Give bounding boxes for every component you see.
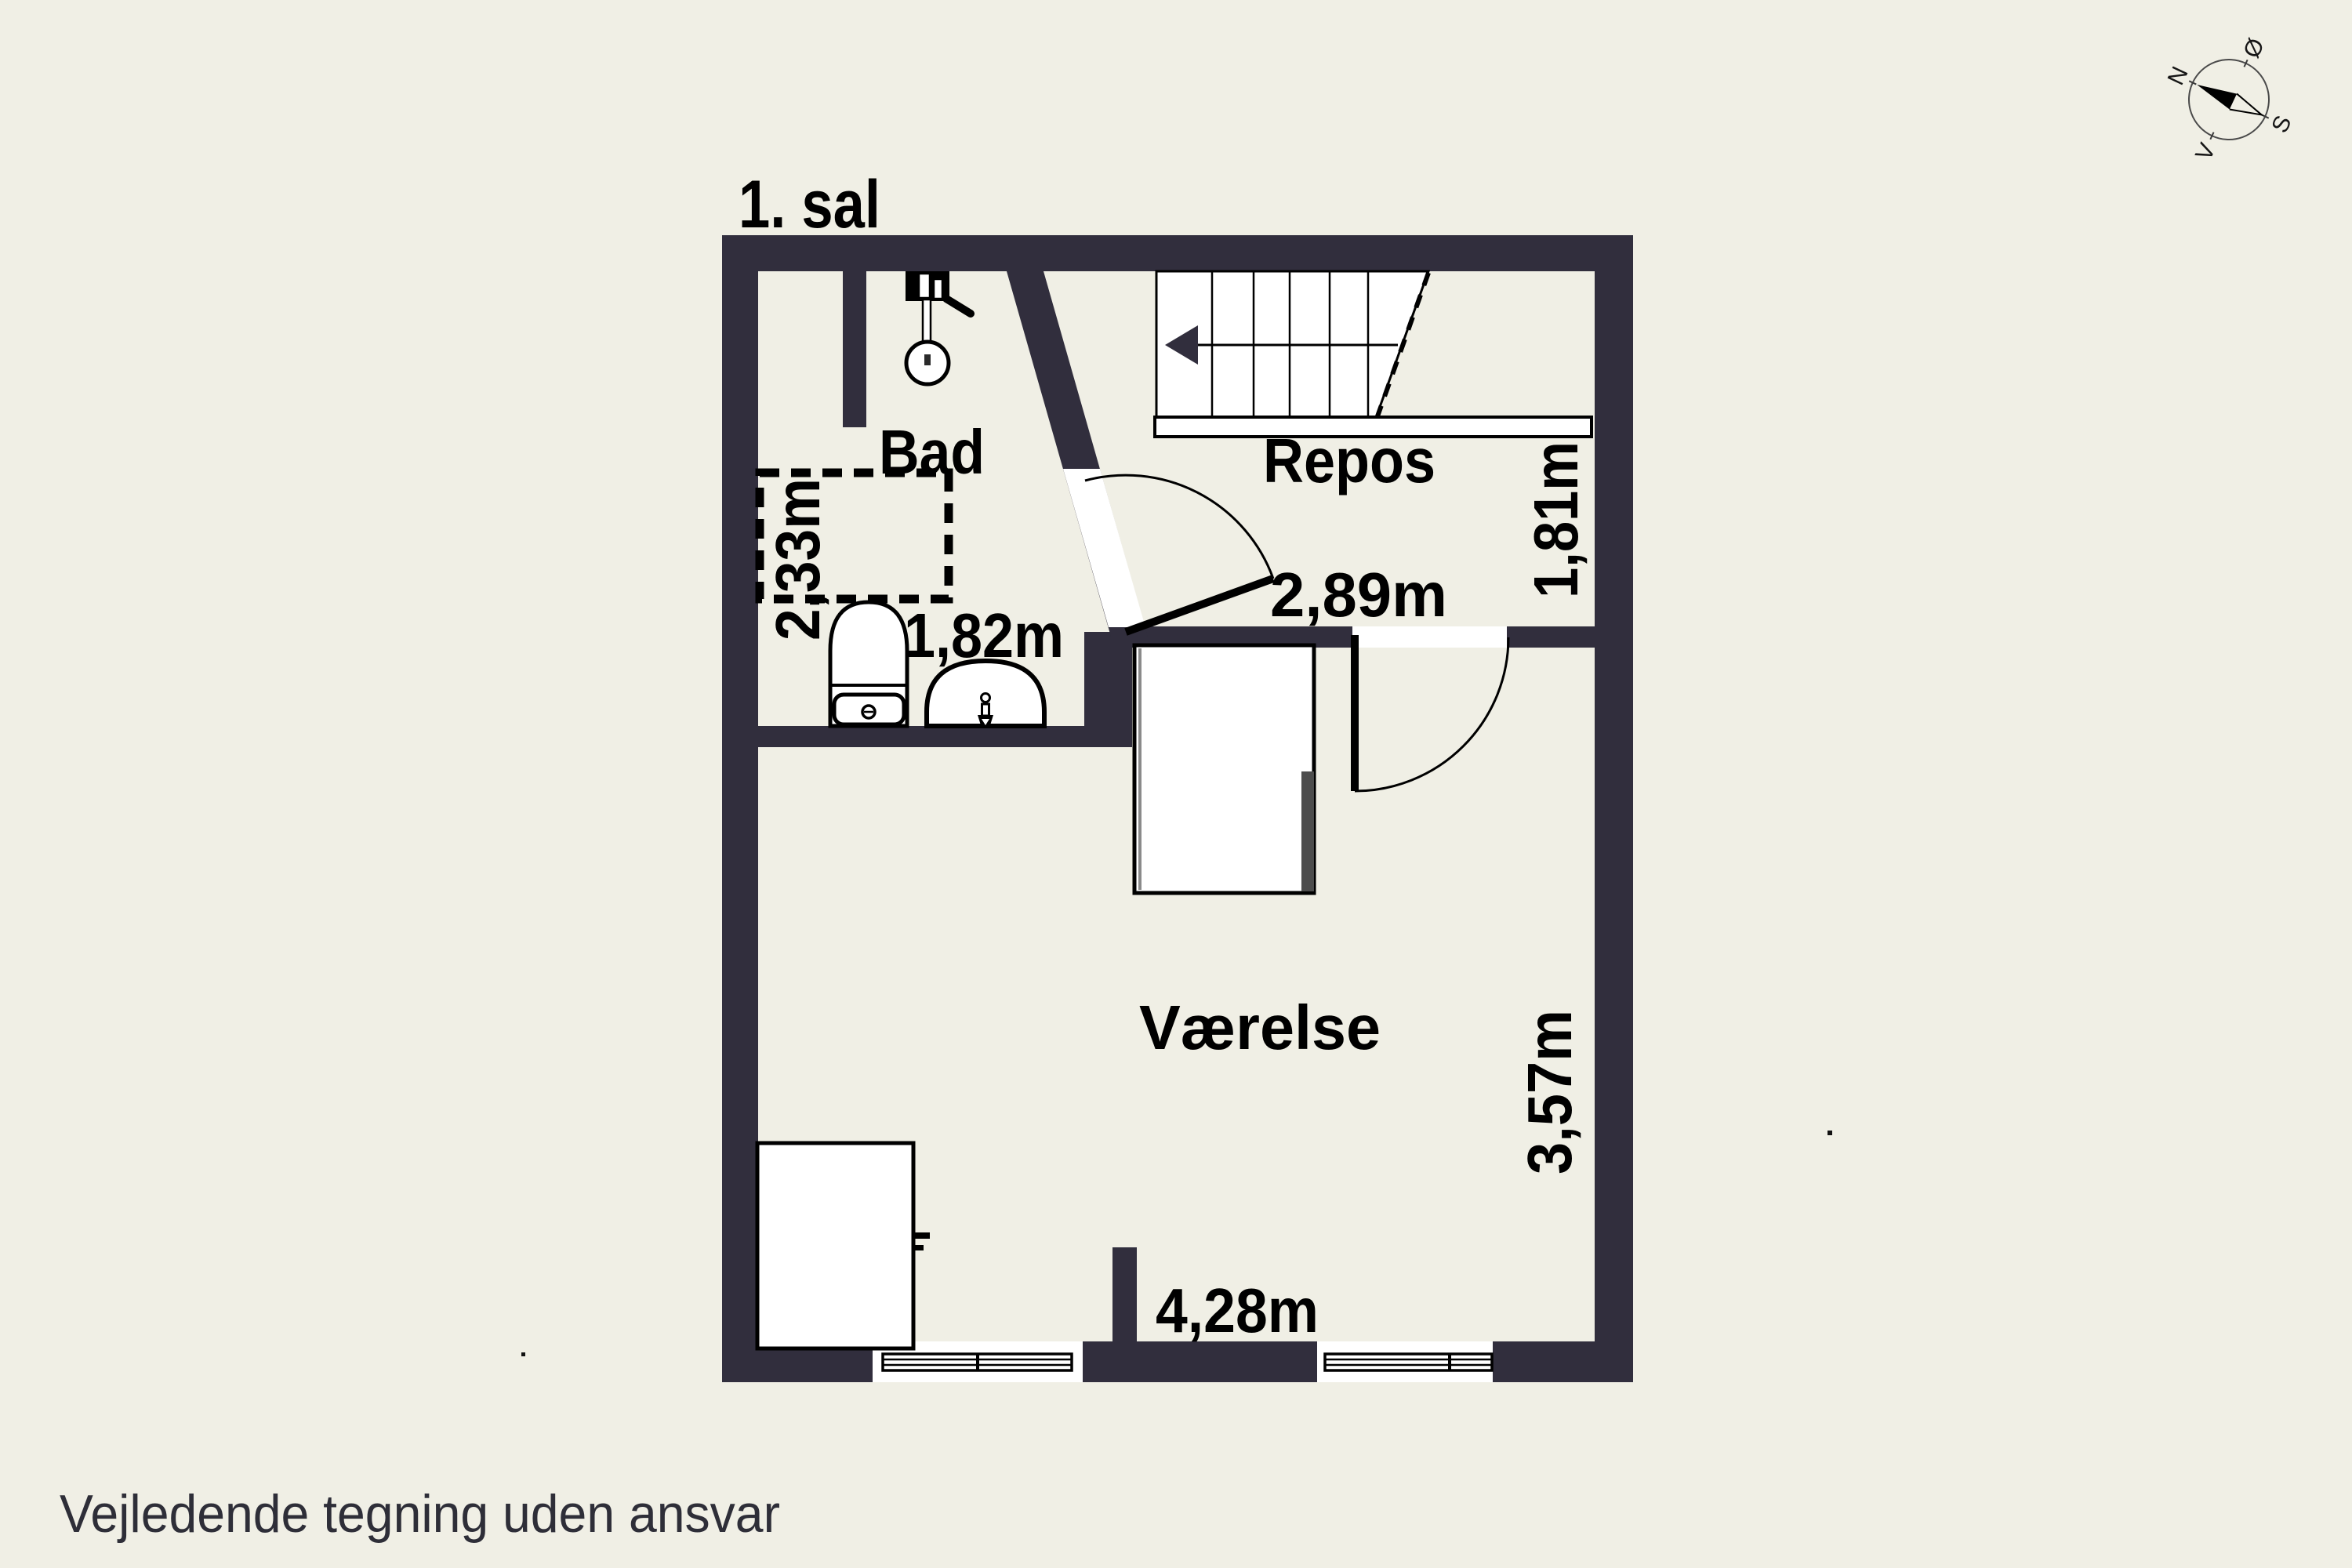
svg-text:1,82m: 1,82m: [904, 601, 1064, 670]
svg-text:Repos: Repos: [1263, 426, 1436, 495]
svg-text:1,81m: 1,81m: [1521, 441, 1591, 598]
svg-text:Bad: Bad: [879, 417, 985, 487]
svg-text:2,89m: 2,89m: [1270, 560, 1447, 630]
svg-text:Vejledende tegning uden ansvar: Vejledende tegning uden ansvar: [60, 1484, 780, 1544]
svg-text:3,57m: 3,57m: [1515, 1010, 1584, 1174]
svg-text:2,33m: 2,33m: [763, 478, 833, 641]
svg-text:Værelse: Værelse: [1139, 993, 1381, 1062]
svg-text:4,28m: 4,28m: [1156, 1276, 1319, 1345]
svg-text:1. sal: 1. sal: [739, 167, 880, 242]
